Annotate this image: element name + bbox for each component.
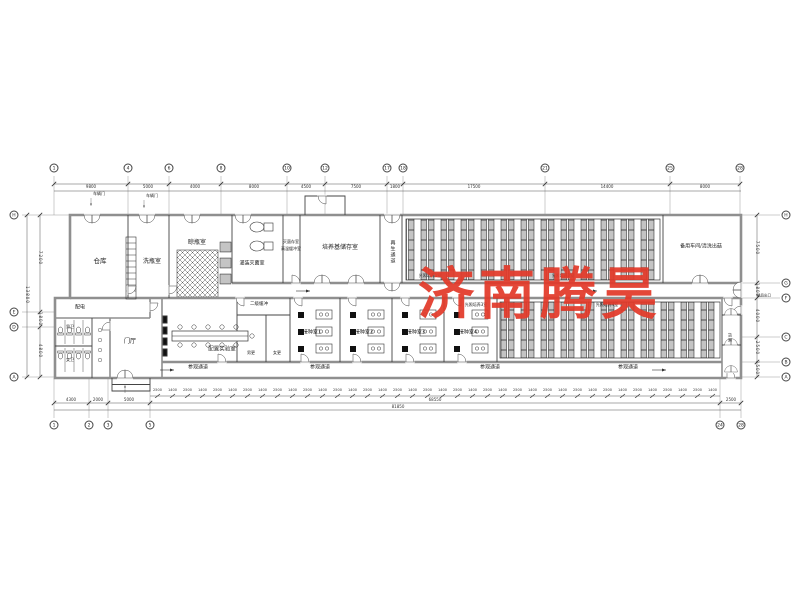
grid-bubble: 28 (736, 164, 745, 173)
room-label: 男卫 (66, 325, 74, 329)
room-label: 配置实验室 (208, 347, 236, 353)
room-label: 女卫 (66, 358, 74, 362)
grid-bubble: A (10, 373, 19, 382)
dimension-run-value: 2500 (570, 389, 585, 393)
room-label: 车辆门 (93, 192, 105, 196)
grid-bubble: 1 (50, 421, 59, 430)
dimension-run-value: 2500 (450, 389, 465, 393)
dimension-run-value: 1400 (495, 389, 510, 393)
room-label: 二级缓冲 (250, 303, 268, 308)
dimension-run-value: 1400 (405, 389, 420, 393)
dimension-run-value: 2500 (690, 389, 705, 393)
grid-bubble: 21 (541, 164, 550, 173)
dimension-label: 4800 (38, 344, 42, 358)
dimension-run-value: 2500 (330, 389, 345, 393)
dimension-run-value: 2500 (600, 389, 615, 393)
drying-racks (220, 242, 231, 284)
room-label: 备用车间/清洗出菇 (680, 245, 722, 250)
room-label: 参观通道 (480, 366, 500, 371)
dimension-run-value: 1400 (705, 389, 720, 393)
room-label: 参观通道 (188, 366, 208, 371)
grid-bubble: F (782, 294, 791, 303)
grid-bubble: 3 (104, 421, 113, 430)
floorplan-linework (0, 0, 800, 600)
dimension-run-value: 2500 (540, 389, 555, 393)
dimension-run-value: 2500 (300, 389, 315, 393)
dimension-label: 14400 (601, 185, 614, 189)
grid-bubble: 25 (666, 164, 675, 173)
grid-bubble: C (782, 333, 791, 342)
dimension-label: 8000 (249, 185, 259, 189)
room-label: 灭菌存室 (283, 240, 299, 244)
watermark-text: 济南腾昊 (418, 250, 662, 331)
dimension-label: 5000 (143, 185, 153, 189)
dimension-run-value: 1400 (195, 389, 210, 393)
grid-bubble: 10 (283, 164, 292, 173)
dimension-label: 1800 (755, 283, 759, 297)
dimension-run-value: 2500 (240, 389, 255, 393)
dimension-run-value: 1400 (165, 389, 180, 393)
dimension-label: 9800 (86, 185, 96, 189)
room-label: 门厅 (124, 339, 136, 345)
drying-room-hatch (177, 250, 218, 297)
dimension-run-value: 2500 (390, 389, 405, 393)
room-label: 高温缓冲室 (281, 247, 301, 251)
dimension-run-value: 1400 (285, 389, 300, 393)
dimension-run: 2500140025001400250014002500140025001400… (150, 389, 720, 393)
dimension-label: 1800 (38, 312, 42, 326)
dimension-run-value: 1400 (645, 389, 660, 393)
grid-bubble: B (782, 358, 791, 367)
dimension-label: 7500 (351, 185, 361, 189)
dimension-label: 68550 (429, 398, 442, 402)
grid-bubble: H (10, 211, 19, 220)
room-label: 仓库 (94, 258, 107, 265)
room-label: 接种室2 (355, 331, 373, 336)
dimension-run-value: 2500 (660, 389, 675, 393)
dimension-run-value: 2500 (270, 389, 285, 393)
dimension-label: 7200 (38, 251, 42, 265)
room-label: 接种室3 (407, 331, 425, 336)
dimension-label: 13800 (25, 286, 29, 304)
dimension-label: 81850 (392, 405, 405, 409)
dimension-run-value: 2500 (150, 389, 165, 393)
grid-bubble: 28 (737, 421, 746, 430)
floor-plan-sheet: 14681012171821252812352428HEDAHGFCBA 仓库洗… (0, 0, 800, 600)
room-label: 配电 (75, 306, 85, 311)
grid-bubble: H (782, 211, 791, 220)
grid-bubble: 4 (124, 164, 133, 173)
dimension-run-value: 1400 (375, 389, 390, 393)
dimension-run-value: 2500 (510, 389, 525, 393)
dimension-run-value: 2500 (360, 389, 375, 393)
dimension-label: 4000 (190, 185, 200, 189)
room-label: 女更 (273, 351, 281, 355)
dimension-label: 4300 (66, 398, 76, 402)
grid-bubble: E (10, 308, 19, 317)
dimension-run-value: 1400 (615, 389, 630, 393)
room-label: 车辆门 (146, 194, 158, 198)
dimension-run-value: 1400 (555, 389, 570, 393)
dimension-run-value: 2500 (210, 389, 225, 393)
grid-bubble: 18 (399, 164, 408, 173)
dimension-run-value: 2500 (180, 389, 195, 393)
room-label: 参观通道 (310, 366, 330, 371)
room-label: 再生通道 (390, 240, 395, 264)
room-label: 晾瓶室 (188, 240, 206, 246)
dimension-run-value: 2500 (420, 389, 435, 393)
dimension-run-value: 1400 (585, 389, 600, 393)
dimension-label: 7500 (755, 241, 759, 255)
grid-bubble: D (10, 323, 19, 332)
grid-bubble: G (782, 279, 791, 288)
room-label: 男更 (247, 351, 255, 355)
grid-bubble: 5 (146, 421, 155, 430)
grid-bubble: 17 (383, 164, 392, 173)
dimension-run-value: 1400 (435, 389, 450, 393)
dimension-run-value: 1400 (315, 389, 330, 393)
grid-bubble: A (782, 373, 791, 382)
grid-bubble: 1 (50, 164, 59, 173)
dimension-run-value: 1400 (345, 389, 360, 393)
dimension-label: 2000 (93, 398, 103, 402)
grid-bubble: 8 (217, 164, 226, 173)
grid-bubble: 2 (85, 421, 94, 430)
dimension-run-value: 1400 (255, 389, 270, 393)
dimension-label: 1800 (390, 185, 400, 189)
dimension-label: 8000 (700, 185, 710, 189)
room-label: 货淋 (728, 333, 732, 343)
dimension-run-value: 2500 (480, 389, 495, 393)
dimension-run-value: 1400 (525, 389, 540, 393)
room-label: 接种室1 (303, 331, 321, 336)
room-label: 洗瓶室 (143, 259, 161, 265)
dimension-label: 1500 (755, 361, 759, 375)
room-label: 接种室4 (459, 331, 477, 336)
dimension-label: 17500 (468, 185, 481, 189)
dimension-label: 2500 (755, 341, 759, 355)
dimension-run-value: 2500 (630, 389, 645, 393)
dimension-run-value: 1400 (675, 389, 690, 393)
dimension-label: 2500 (726, 398, 736, 402)
grid-bubble: 6 (165, 164, 174, 173)
room-label: 灌装灭菌室 (239, 262, 264, 267)
autoclaves (250, 222, 273, 251)
dimension-run-value: 1400 (465, 389, 480, 393)
room-label: 培养基储存室 (322, 245, 358, 251)
grid-bubble: 24 (716, 421, 725, 430)
room-label: 参观通道 (618, 366, 638, 371)
dimension-label: 5000 (124, 398, 134, 402)
dimension-label: 4000 (755, 309, 759, 323)
grid-bubble: 12 (321, 164, 330, 173)
dimension-run-value: 1400 (225, 389, 240, 393)
dimension-label: 4500 (301, 185, 311, 189)
